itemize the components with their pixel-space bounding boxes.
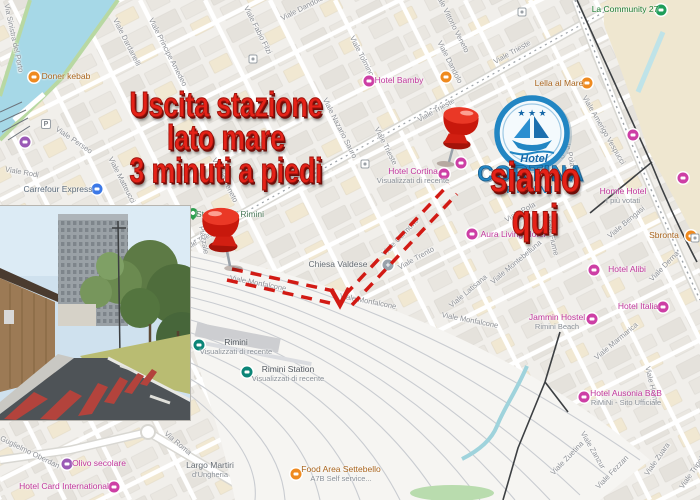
route-arrow — [331, 288, 349, 305]
note-we-are-here: siamo qui — [469, 157, 602, 240]
walking-route — [227, 184, 457, 305]
pushpin-station — [202, 208, 242, 271]
note-walk-time: 3 minuti a piedi — [117, 153, 335, 188]
annotation-overlay: ★ ★ ★ Hotel CORTINA CORTINA RIMINI — [0, 0, 700, 500]
logo-stars: ★ ★ ★ — [517, 108, 546, 118]
promo-map-image: Via Sinistra del PortoViale DardanelliVi… — [0, 0, 700, 500]
